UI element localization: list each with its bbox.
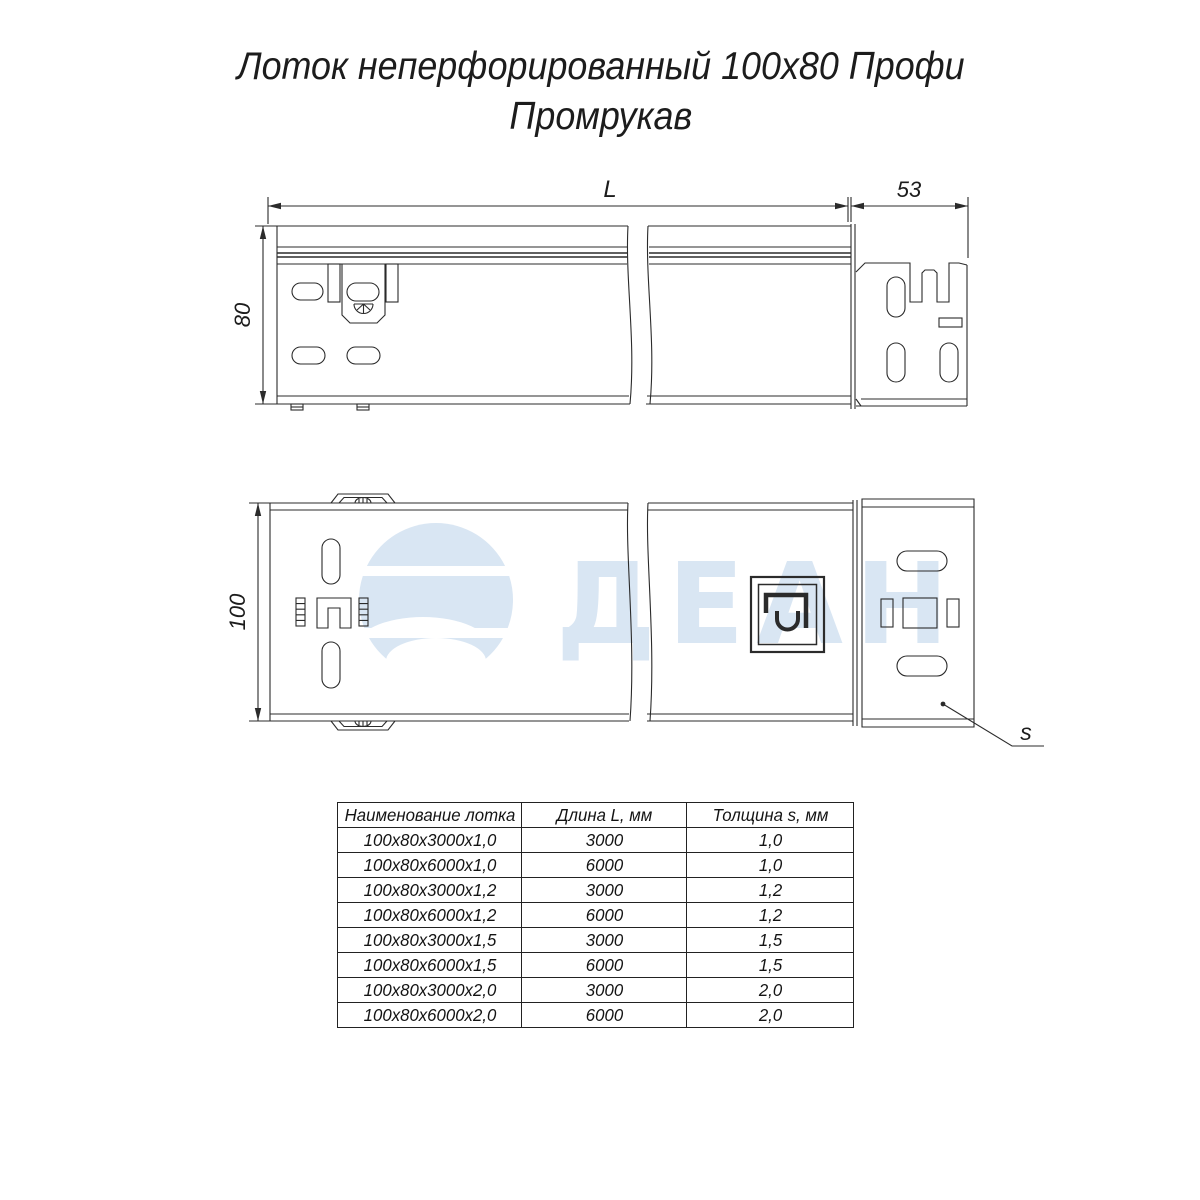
slot-oval — [292, 283, 323, 300]
dim-label-L: L — [603, 176, 616, 203]
slot-oval — [887, 343, 905, 382]
table-cell: 3000 — [525, 928, 683, 953]
spec-table-header-cell: Толщина s, мм — [690, 803, 850, 828]
table-cell: 1,0 — [690, 828, 850, 853]
table-cell: 3000 — [525, 878, 683, 903]
spec-table-header-cell: Длина L, мм — [525, 803, 683, 828]
watermark-logo: ДЕАН — [355, 523, 961, 684]
latch-clip — [328, 264, 398, 323]
table-row: 100х80х3000х1,030001,0 — [338, 828, 854, 853]
table-cell: 6000 — [525, 953, 683, 978]
spec-table-head: Наименование лоткаДлина L, ммТолщина s, … — [338, 803, 854, 828]
table-cell: 100х80х6000х1,5 — [341, 953, 518, 978]
table-row: 100х80х3000х2,030002,0 — [338, 978, 854, 1003]
table-row: 100х80х6000х1,060001,0 — [338, 853, 854, 878]
slot-oval — [322, 539, 340, 584]
table-cell: 2,0 — [690, 978, 850, 1003]
table-cell: 2,0 — [690, 1003, 850, 1028]
dimension-end-width: 53 — [851, 177, 968, 209]
top-view: L 53 80 — [230, 176, 968, 410]
table-cell: 100х80х3000х1,0 — [341, 828, 518, 853]
drawing-sheet: Лоток неперфорированный 100х80 Профи Про… — [0, 0, 1200, 1200]
table-cell: 100х80х6000х1,0 — [341, 853, 518, 878]
table-cell: 100х80х6000х2,0 — [341, 1003, 518, 1028]
dimension-width: 100 — [225, 503, 271, 721]
spec-table-header-cell: Наименование лотка — [341, 803, 518, 828]
slot-oval — [347, 347, 380, 364]
table-row: 100х80х3000х1,530001,5 — [338, 928, 854, 953]
slot-rect — [939, 318, 962, 327]
table-row: 100х80х6000х1,260001,2 — [338, 903, 854, 928]
dim-label-100: 100 — [225, 593, 250, 630]
table-row: 100х80х3000х1,230001,2 — [338, 878, 854, 903]
thickness-leader: s — [941, 702, 1044, 746]
dim-label-80: 80 — [230, 302, 255, 327]
table-cell: 3000 — [525, 828, 683, 853]
table-cell: 100х80х3000х1,5 — [341, 928, 518, 953]
slot-oval — [292, 347, 325, 364]
table-row: 100х80х6000х2,060002,0 — [338, 1003, 854, 1028]
spec-table: Наименование лоткаДлина L, ммТолщина s, … — [337, 802, 854, 1028]
dimension-height: 80 — [230, 226, 278, 404]
table-cell: 6000 — [525, 853, 683, 878]
table-cell: 100х80х6000х1,2 — [341, 903, 518, 928]
table-cell: 1,5 — [690, 953, 850, 978]
edge-clip-top — [331, 494, 395, 503]
table-cell: 3000 — [525, 978, 683, 1003]
table-row: 100х80х6000х1,560001,5 — [338, 953, 854, 978]
table-cell: 6000 — [525, 903, 683, 928]
table-cell: 1,2 — [690, 878, 850, 903]
dim-label-53: 53 — [897, 177, 922, 202]
slot-oval — [322, 642, 340, 688]
dim-label-s: s — [1020, 719, 1032, 745]
break-line — [627, 226, 631, 404]
table-cell: 100х80х3000х2,0 — [341, 978, 518, 1003]
watermark-sphere-hole — [386, 638, 486, 684]
edge-clip-bottom — [331, 721, 395, 730]
slot-oval — [887, 277, 905, 317]
stamped-detail — [296, 598, 368, 628]
spec-table-body: 100х80х3000х1,030001,0100х80х6000х1,0600… — [338, 828, 854, 1028]
end-connector — [856, 263, 967, 406]
table-cell: 1,5 — [690, 928, 850, 953]
table-cell: 1,0 — [690, 853, 850, 878]
table-cell: 100х80х3000х1,2 — [341, 878, 518, 903]
slot-oval — [940, 343, 958, 382]
dimension-length: L — [268, 176, 968, 258]
table-cell: 1,2 — [690, 903, 850, 928]
table-cell: 6000 — [525, 1003, 683, 1028]
spec-table-header-row: Наименование лоткаДлина L, ммТолщина s, … — [338, 803, 854, 828]
